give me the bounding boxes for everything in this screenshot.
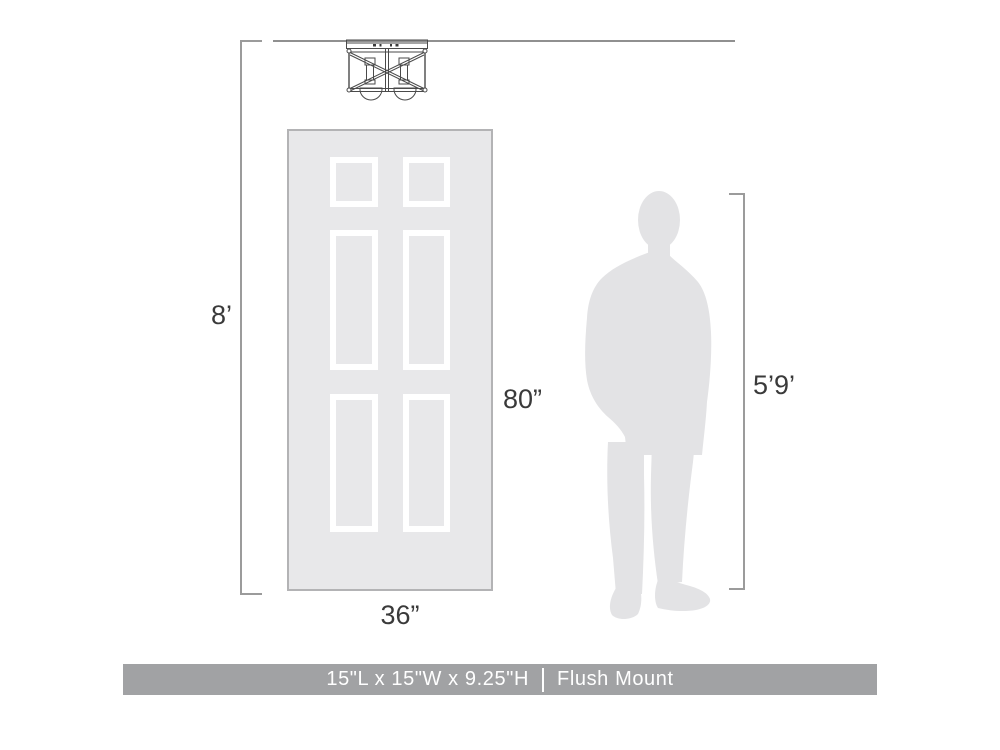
person-height-dimension-line [743, 193, 745, 590]
door-panel [403, 230, 450, 370]
door-panel [403, 157, 450, 207]
ceiling-height-bottom-tick [240, 593, 262, 595]
caption-divider [542, 668, 544, 692]
person-height-top-tick [729, 193, 745, 195]
door-panel [403, 394, 450, 532]
dimensions-diagram: 8’ [0, 0, 1000, 750]
flush-mount-cage-light-icon [343, 39, 431, 101]
ceiling-height-dimension-line [240, 40, 242, 595]
mount-type-text: Flush Mount [557, 668, 674, 691]
door-width-label: 36” [360, 602, 440, 629]
door-panel [330, 394, 378, 532]
door-panel [330, 157, 378, 207]
ceiling-height-label: 8’ [196, 302, 232, 329]
product-size-text: 15"L x 15"W x 9.25"H [326, 668, 529, 691]
door-height-label: 80” [503, 386, 542, 413]
product-size-caption-bar: 15"L x 15"W x 9.25"H Flush Mount [123, 664, 877, 695]
person-height-bottom-tick [729, 588, 745, 590]
man-silhouette-figure [580, 190, 720, 620]
door-panel [330, 230, 378, 370]
ceiling-height-top-tick [240, 40, 262, 42]
six-panel-door-figure [287, 129, 493, 591]
person-height-label: 5’9’ [753, 372, 795, 399]
